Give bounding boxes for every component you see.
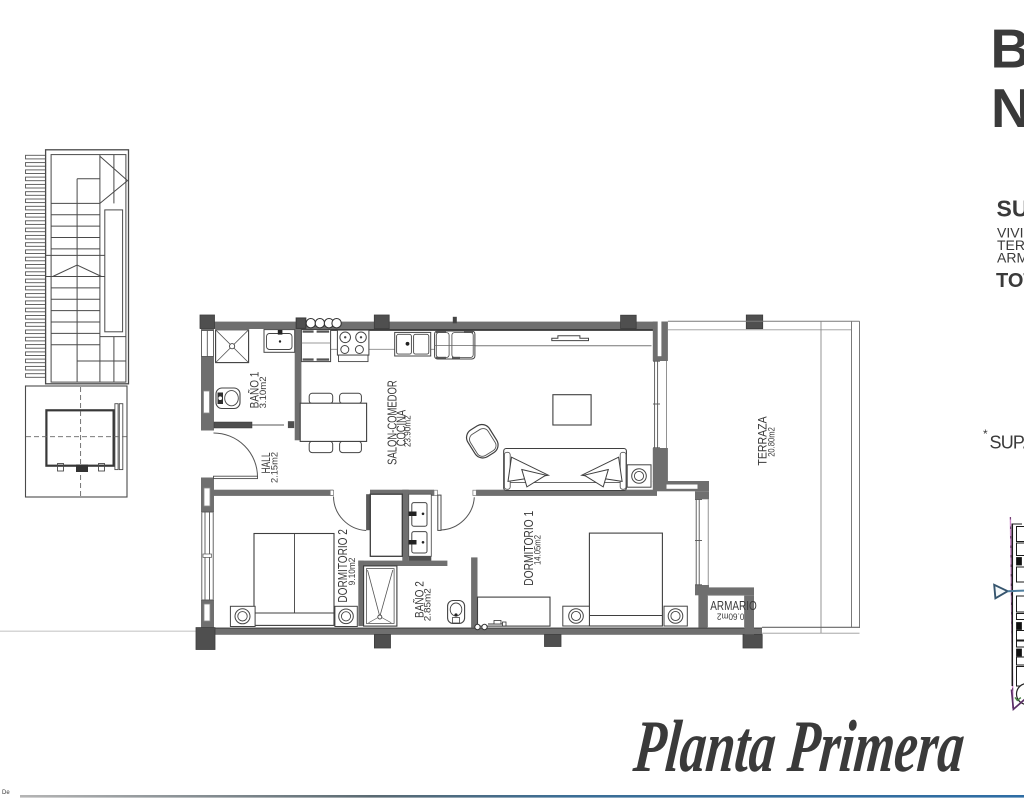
svg-text:*: * bbox=[983, 427, 988, 441]
svg-text:14.05m2: 14.05m2 bbox=[533, 535, 544, 565]
svg-text:3.10m2: 3.10m2 bbox=[258, 376, 269, 408]
svg-text:Planta Primera: Planta Primera bbox=[630, 705, 968, 787]
svg-text:20.80m2: 20.80m2 bbox=[766, 427, 777, 457]
svg-text:De: De bbox=[2, 790, 10, 796]
svg-text:9.10m2: 9.10m2 bbox=[347, 558, 358, 586]
svg-text:23.90m2: 23.90m2 bbox=[403, 415, 414, 447]
svg-text:0.60m2: 0.60m2 bbox=[717, 611, 744, 622]
svg-text:BLOQUE: BLOQUE bbox=[991, 18, 1024, 80]
svg-text:Nº 5: Nº 5 bbox=[991, 77, 1024, 139]
svg-text:2.85m2: 2.85m2 bbox=[423, 588, 434, 621]
svg-text:SUP. CO: SUP. CO bbox=[990, 433, 1024, 453]
svg-text:SUPERFICIES: SUPERFICIES bbox=[997, 196, 1024, 222]
svg-text:2.15m2: 2.15m2 bbox=[270, 452, 281, 483]
svg-text:ARMARIO: 0.60m2: ARMARIO: 0.60m2 bbox=[997, 250, 1024, 266]
svg-text:TOTAL: 76.40m2: TOTAL: 76.40m2 bbox=[996, 270, 1024, 292]
